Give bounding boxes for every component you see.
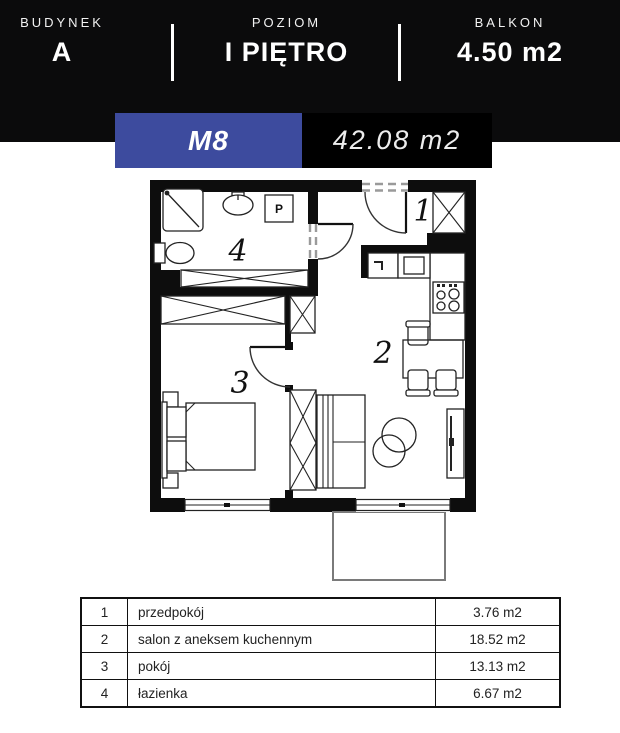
room-area-cell: 18.52 m2	[436, 626, 561, 653]
room-number-living: 2	[372, 336, 392, 371]
floorplan-card: BUDYNEK A POZIOM I PIĘTRO BALKON 4.50 m2…	[0, 0, 620, 733]
level-value: I PIĘTRO	[173, 37, 400, 68]
wardrobe-icon	[161, 296, 285, 324]
room-name-cell: łazienka	[128, 680, 436, 708]
bedroom-door	[250, 347, 290, 387]
room-number-cell: 2	[81, 626, 128, 653]
floorplan-drawing: P	[148, 176, 480, 584]
room-area-cell: 6.67 m2	[436, 680, 561, 708]
balcony-label: BALKON	[400, 15, 620, 30]
table-row: 1 przedpokój 3.76 m2	[81, 598, 560, 626]
window-bedroom	[185, 498, 270, 512]
balcony-outline	[333, 512, 445, 580]
washing-machine-icon: P	[265, 195, 293, 222]
header-section-balcony: BALKON 4.50 m2	[400, 15, 620, 68]
svg-text:P: P	[275, 202, 283, 216]
building-value: A	[0, 37, 124, 68]
unit-total-area: 42.08 m2	[302, 113, 492, 168]
room-area-cell: 3.76 m2	[436, 598, 561, 626]
room-name-cell: pokój	[128, 653, 436, 680]
room-name-cell: salon z aneksem kuchennym	[128, 626, 436, 653]
room-area-cell: 13.13 m2	[436, 653, 561, 680]
table-row: 2 salon z aneksem kuchennym 18.52 m2	[81, 626, 560, 653]
header-section-building: BUDYNEK A	[0, 15, 124, 68]
stove-icon	[433, 282, 464, 313]
room-number-bedroom: 3	[230, 366, 249, 401]
sofa-icon	[317, 395, 365, 488]
shower-icon	[163, 189, 203, 231]
window-living	[356, 498, 450, 512]
unit-code-badge: M8	[115, 113, 302, 168]
entrance-door	[362, 184, 408, 233]
room-name-cell: przedpokój	[128, 598, 436, 626]
table-row: 3 pokój 13.13 m2	[81, 653, 560, 680]
toilet-icon	[154, 243, 194, 264]
entry-wardrobe-icon	[433, 192, 465, 233]
bathroom-cabinet-icon	[181, 270, 308, 287]
hall-closet-icon	[290, 296, 315, 333]
unit-strip: M8 42.08 m2	[115, 113, 492, 168]
room-number-hall: 1	[413, 194, 432, 229]
tv-unit-icon	[447, 409, 464, 478]
table-row: 4 łazienka 6.67 m2	[81, 680, 560, 708]
room-number-cell: 4	[81, 680, 128, 708]
bathroom-door	[310, 224, 353, 259]
room-number-cell: 1	[81, 598, 128, 626]
room-number-cell: 3	[81, 653, 128, 680]
sink-icon	[223, 192, 253, 215]
level-label: POZIOM	[173, 15, 400, 30]
balcony-value: 4.50 m2	[400, 37, 620, 68]
room-number-bathroom: 4	[227, 234, 247, 269]
tall-closet-icon	[290, 390, 316, 490]
bed-icon	[162, 392, 255, 488]
coffee-tables-icon	[373, 418, 416, 467]
rooms-table: 1 przedpokój 3.76 m2 2 salon z aneksem k…	[80, 597, 561, 708]
building-label: BUDYNEK	[0, 15, 124, 30]
header-section-level: POZIOM I PIĘTRO	[173, 15, 400, 68]
dining-set-icon	[403, 321, 463, 396]
